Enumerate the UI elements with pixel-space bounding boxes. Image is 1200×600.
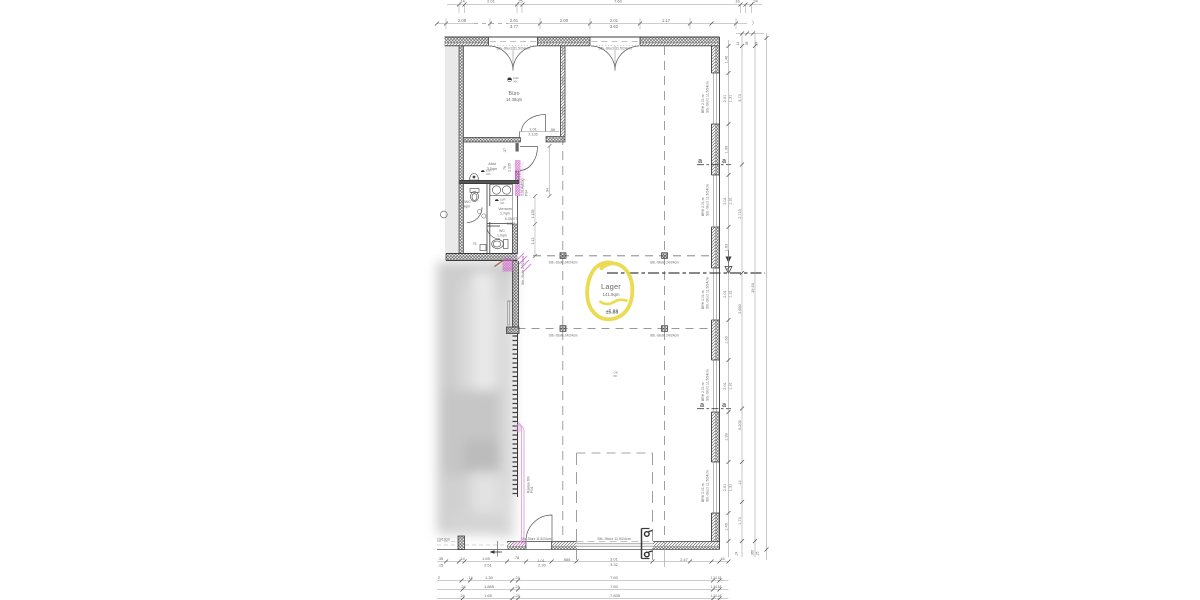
- svg-text:.985: .985: [563, 557, 572, 562]
- svg-text:1.65: 1.65: [484, 593, 493, 598]
- svg-text:7.60: 7.60: [610, 575, 619, 580]
- svg-text:Stb.-Stufe 24/24cm: Stb.-Stufe 24/24cm: [548, 333, 577, 337]
- svg-text:WC: WC: [499, 229, 505, 233]
- svg-text:2.135: 2.135: [508, 163, 512, 172]
- svg-text:Stb.-Sturz 11.5/24cm: Stb.-Sturz 11.5/24cm: [706, 470, 710, 502]
- svg-text:1.74: 1.74: [738, 517, 742, 524]
- svg-text:KK: KK: [487, 172, 491, 176]
- svg-text:2.30: 2.30: [538, 563, 547, 568]
- svg-text:3.32: 3.32: [610, 562, 619, 567]
- svg-text:.25: .25: [517, 0, 523, 4]
- svg-text:7.835: 7.835: [610, 593, 621, 598]
- svg-text:1.46: 1.46: [724, 56, 728, 63]
- svg-text:2.01: 2.01: [610, 18, 619, 23]
- svg-text:Abst: Abst: [488, 162, 497, 166]
- svg-text:14.38qm: 14.38qm: [506, 97, 523, 102]
- svg-text:1.65: 1.65: [482, 556, 491, 561]
- svg-text:2.01: 2.01: [723, 382, 727, 389]
- svg-text:KK: KK: [514, 80, 518, 84]
- svg-text:BRH 2.01 m: BRH 2.01 m: [701, 94, 705, 113]
- svg-text:Stb.-Stufe 24/24cm: Stb.-Stufe 24/24cm: [650, 333, 679, 337]
- svg-text:7.60: 7.60: [614, 0, 623, 4]
- svg-text:.78: .78: [514, 555, 520, 560]
- svg-text:Stb.-Sturz 11.5/24cm: Stb.-Sturz 11.5/24cm: [706, 369, 710, 401]
- svg-text:BRH 2.01 m: BRH 2.01 m: [701, 197, 705, 216]
- svg-text:2.61: 2.61: [510, 18, 519, 23]
- svg-text:Stb.-Stufe 24/24cm: Stb.-Stufe 24/24cm: [548, 261, 577, 265]
- svg-text:.25: .25: [756, 551, 760, 556]
- svg-text:1.7qm: 1.7qm: [500, 212, 510, 216]
- svg-text:Vorraum: Vorraum: [498, 207, 512, 211]
- svg-text:2.01: 2.01: [723, 95, 727, 102]
- svg-text:141.9qm: 141.9qm: [602, 292, 619, 297]
- svg-text:3.01: 3.01: [610, 557, 619, 562]
- svg-text:3.62: 3.62: [610, 24, 619, 29]
- svg-text:.24: .24: [755, 41, 759, 46]
- svg-text:3.77: 3.77: [510, 24, 519, 29]
- svg-text:.24: .24: [514, 584, 520, 589]
- svg-text:.24: .24: [514, 575, 520, 580]
- svg-text:.24: .24: [514, 593, 520, 598]
- svg-text:1.34.18: 1.34.18: [711, 585, 722, 589]
- svg-text:BRH 2.01 m: BRH 2.01 m: [701, 483, 705, 502]
- svg-text:1.46: 1.46: [724, 523, 728, 530]
- svg-text:2.51: 2.51: [484, 563, 493, 568]
- svg-text:1.31: 1.31: [729, 197, 733, 204]
- svg-text:Stb.-Sturz 11.5/24cm: Stb.-Sturz 11.5/24cm: [597, 537, 631, 541]
- svg-text:1.885: 1.885: [484, 584, 495, 589]
- svg-text:.14: .14: [738, 480, 742, 485]
- svg-text:BRH 2.01 m: BRH 2.01 m: [701, 290, 705, 309]
- svg-text:.37: .37: [503, 148, 507, 153]
- svg-text:1.135: 1.135: [531, 210, 535, 219]
- svg-text:1.31: 1.31: [729, 484, 733, 491]
- svg-text:Stb.-Sturz 11.5/24cm: Stb.-Sturz 11.5/24cm: [706, 184, 710, 216]
- svg-text:3.73: 3.73: [738, 94, 742, 101]
- svg-text:FF: FF: [614, 374, 618, 378]
- svg-text:2.715: 2.715: [738, 209, 742, 219]
- svg-text:.24: .24: [735, 551, 739, 556]
- svg-text:2.47: 2.47: [680, 557, 689, 562]
- svg-text:2.135: 2.135: [528, 133, 538, 137]
- svg-text:1.0qm: 1.0qm: [497, 234, 507, 238]
- svg-text:1.31: 1.31: [729, 95, 733, 102]
- svg-text:BRH 2.01 m: BRH 2.01 m: [701, 382, 705, 401]
- svg-text:.14: .14: [459, 0, 465, 4]
- svg-text:.24: .24: [459, 593, 465, 598]
- svg-text:1.24.18: 1.24.18: [711, 576, 722, 580]
- svg-text:±5.88: ±5.88: [606, 310, 619, 316]
- svg-text:1.13: 1.13: [531, 238, 535, 245]
- svg-text:.16: .16: [734, 0, 740, 4]
- svg-text:1.63: 1.63: [724, 244, 728, 251]
- svg-text:.14: .14: [459, 556, 465, 561]
- svg-text:.24: .24: [460, 584, 466, 589]
- svg-text:.35: .35: [438, 556, 444, 561]
- svg-text:Stb.-Sturz 11.5/24cm: Stb.-Sturz 11.5/24cm: [521, 537, 552, 541]
- svg-text:13/13cm: 13/13cm: [437, 538, 450, 542]
- svg-text:.76: .76: [503, 166, 507, 171]
- svg-text:2.01: 2.01: [487, 0, 496, 4]
- svg-text:.14: .14: [736, 41, 740, 46]
- svg-text:2.650: 2.650: [738, 304, 742, 314]
- svg-text:1.01: 1.01: [529, 128, 536, 132]
- svg-text:19.50: 19.50: [750, 282, 755, 293]
- svg-text:.365: .365: [751, 550, 755, 556]
- svg-text:.15: .15: [438, 563, 444, 568]
- svg-text:1.31: 1.31: [729, 382, 733, 389]
- svg-text:KK: KK: [501, 201, 505, 205]
- svg-text:1.99: 1.99: [724, 433, 728, 440]
- svg-text:1.30: 1.30: [485, 575, 494, 580]
- svg-text:1.31: 1.31: [729, 290, 733, 297]
- svg-text:1.63: 1.63: [724, 336, 728, 343]
- svg-text:7.60: 7.60: [610, 584, 619, 589]
- svg-text:2.01: 2.01: [723, 484, 727, 491]
- svg-text:1.17: 1.17: [662, 18, 671, 23]
- svg-text:2.01: 2.01: [723, 290, 727, 297]
- svg-text:.16: .16: [719, 556, 725, 561]
- svg-text:Lager: Lager: [601, 282, 621, 291]
- svg-text:1.24.18: 1.24.18: [711, 594, 722, 598]
- svg-text:.14: .14: [467, 575, 473, 580]
- svg-text:2.00: 2.00: [560, 18, 569, 23]
- svg-text:Du/WC: Du/WC: [459, 200, 471, 204]
- svg-text:1.9qm: 1.9qm: [460, 205, 470, 209]
- svg-text:Stb.-Sturz 11.5/24cm: Stb.-Sturz 11.5/24cm: [706, 81, 710, 113]
- svg-text:2.06: 2.06: [458, 18, 467, 23]
- svg-text:.24: .24: [752, 0, 758, 4]
- svg-text:1.99: 1.99: [724, 146, 728, 153]
- svg-text:P04: P04: [525, 190, 529, 196]
- svg-text:6.205: 6.205: [738, 420, 742, 430]
- svg-text:.36: .36: [745, 41, 749, 46]
- svg-text:6.35/.07: 6.35/.07: [505, 217, 517, 221]
- svg-text:Stb.-Stufe 24/24cm: Stb.-Stufe 24/24cm: [650, 261, 679, 265]
- svg-text:2.01: 2.01: [723, 197, 727, 204]
- svg-text:.94: .94: [546, 188, 550, 193]
- svg-text:P04: P04: [530, 487, 534, 493]
- svg-text:.75: .75: [472, 242, 477, 246]
- svg-text:Stb.-Sturz 11.5/24cm: Stb.-Sturz 11.5/24cm: [706, 277, 710, 309]
